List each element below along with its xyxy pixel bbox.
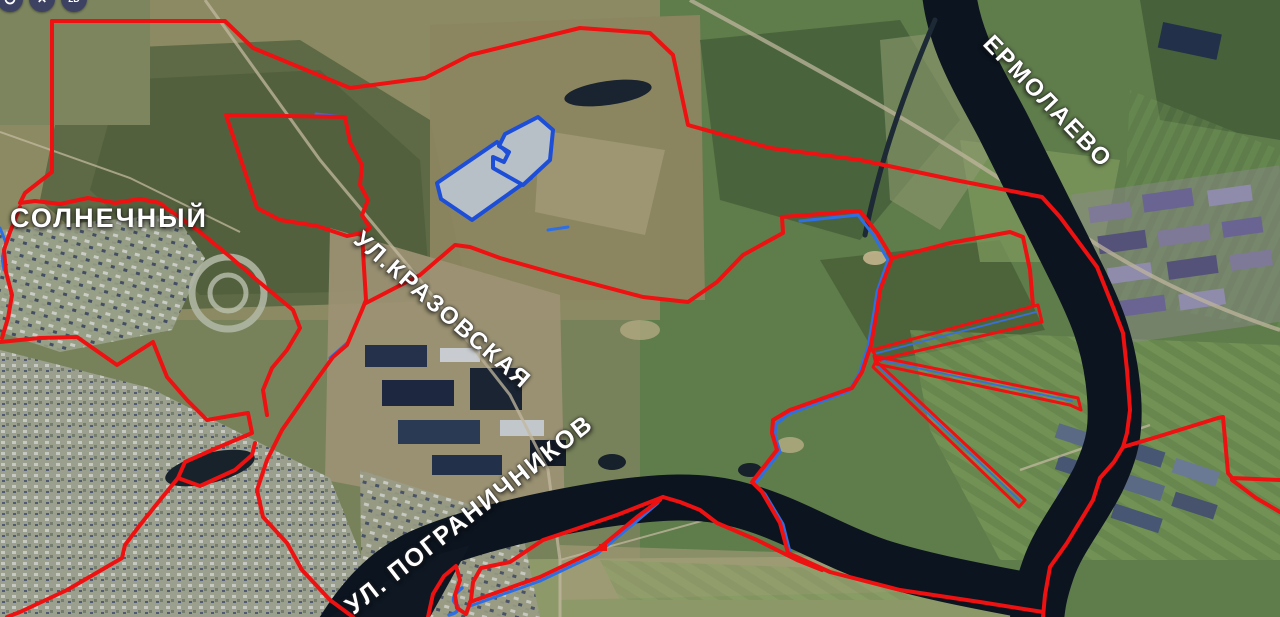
map-mode-2d-button[interactable]: 2D	[61, 0, 87, 12]
rotate-view-button[interactable]	[0, 0, 23, 12]
terrain-layer	[0, 0, 1280, 617]
close-button[interactable]: ✕	[29, 0, 55, 12]
place-label-solnechny: СОЛНЕЧНЫЙ	[10, 203, 208, 234]
map-controls: ✕ 2D	[0, 0, 87, 12]
satellite-map-canvas[interactable]: СОЛНЕЧНЫЙ ЕРМОЛАЕВО УЛ.КРАЗОВСКАЯ УЛ. ПО…	[0, 0, 1280, 617]
satellite-basemap	[0, 0, 1280, 617]
